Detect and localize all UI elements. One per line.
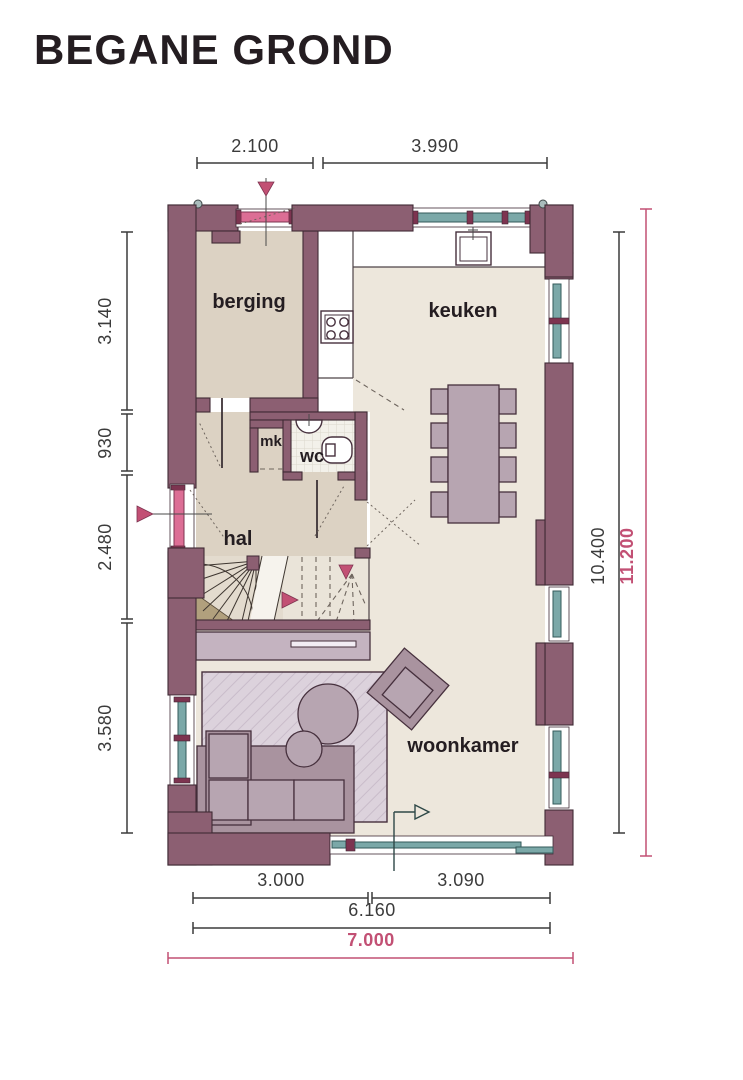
dining-chair <box>431 457 448 482</box>
dimension-top-left: 2.100 <box>197 136 313 169</box>
dim-text: 3.000 <box>257 870 305 890</box>
dim-text: 11.200 <box>617 527 637 584</box>
dim-text: 3.090 <box>437 870 485 890</box>
sliding-door-glass <box>355 842 521 848</box>
berging-floor <box>196 231 303 398</box>
wall-hal-kitchen <box>355 548 370 558</box>
dimension-top-right: 3.990 <box>323 136 547 169</box>
wall-wc-bottom <box>283 472 302 480</box>
entry-door <box>174 490 184 546</box>
dining-chair <box>431 423 448 448</box>
window-bottom <box>332 841 346 848</box>
dimension-bottom-right: 3.090 <box>372 870 550 904</box>
floor-plan-page: BEGANE GROND <box>0 0 743 1080</box>
sofa-cushion <box>294 780 344 820</box>
dim-text: 3.990 <box>411 136 459 156</box>
sofa-cushion <box>248 780 294 820</box>
wall-mk-top <box>250 420 288 428</box>
sofa-cushion <box>209 734 248 778</box>
berging-entry-arrow-icon <box>258 182 274 196</box>
page-title: BEGANE GROND <box>34 26 394 73</box>
sofa <box>197 731 354 833</box>
wall-hal-kitchen <box>355 412 367 500</box>
window-right-3 <box>553 731 561 804</box>
dim-text: 2.480 <box>95 523 115 571</box>
dim-text: 6.160 <box>348 900 396 920</box>
sideboard-slot <box>291 641 356 647</box>
kitchen-counter-top <box>318 231 545 267</box>
wall-berging-hal <box>250 398 318 412</box>
dimension-bottom-left: 3.000 <box>193 870 368 904</box>
window-right-2 <box>553 591 561 637</box>
dim-text: 7.000 <box>347 930 395 950</box>
dining-chair <box>431 492 448 517</box>
dining-chair <box>431 389 448 414</box>
cooktop <box>321 311 353 343</box>
room-label-mk: mk <box>260 433 282 450</box>
dim-text: 10.400 <box>588 527 608 585</box>
dimension-bottom-span: 6.160 <box>193 900 550 934</box>
wall-stairs-living <box>196 620 370 630</box>
stairs-upper-area <box>283 556 370 622</box>
dining-chair <box>499 492 516 517</box>
dining-chair <box>499 389 516 414</box>
sofa-cushion <box>209 780 248 820</box>
room-label-woonkamer: woonkamer <box>406 735 518 757</box>
dim-text: 3.140 <box>95 297 115 345</box>
dining-chair <box>499 423 516 448</box>
dimension-bottom-total: 7.000 <box>168 930 573 964</box>
dimension-left-column: 3.140 930 2.480 3.580 <box>95 232 133 833</box>
dimension-right-outer: 11.200 <box>617 209 652 856</box>
room-label-berging: berging <box>212 291 285 313</box>
dim-text: 2.100 <box>231 136 279 156</box>
wall-mk-left <box>250 428 258 472</box>
side-table <box>286 731 322 767</box>
entry-arrow-icon <box>137 506 153 522</box>
room-label-keuken: keuken <box>429 300 498 322</box>
stairs-newel <box>247 556 259 570</box>
dim-text: 930 <box>95 427 115 459</box>
wall-berging-hal <box>196 398 210 412</box>
sliding-door-glass-offset <box>516 847 553 853</box>
room-label-wc: wc <box>299 446 324 466</box>
dining-chair <box>499 457 516 482</box>
dim-text: 3.580 <box>95 704 115 752</box>
room-label-hal: hal <box>224 528 253 550</box>
toilet-cistern <box>326 444 335 456</box>
dining-table <box>448 385 499 523</box>
wall-berging-kitchen <box>303 231 318 412</box>
wall-mk-wc <box>283 420 291 472</box>
floor-plan-drawing: BEGANE GROND <box>0 0 743 1080</box>
